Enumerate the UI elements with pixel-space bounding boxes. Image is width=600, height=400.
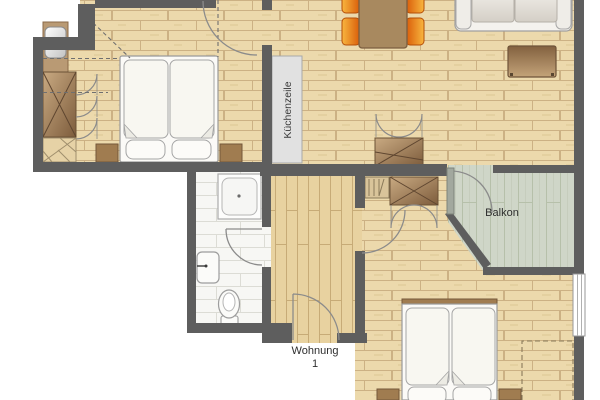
bed2-nightstand-left bbox=[377, 389, 399, 400]
hallway-floor bbox=[262, 166, 362, 343]
dining-chair bbox=[406, 0, 424, 13]
shower-drain bbox=[237, 194, 240, 197]
bed2-duvet-right bbox=[452, 308, 495, 385]
dining-chair bbox=[342, 18, 360, 45]
wall-bath-right-upper bbox=[262, 172, 271, 227]
bed1-pillow-left bbox=[126, 140, 165, 159]
bed2-pillow-left bbox=[408, 387, 446, 400]
wall-hall-stub-b bbox=[355, 251, 365, 340]
kitchen-unit-label: Küchenzeile bbox=[282, 81, 294, 138]
washbasin bbox=[197, 252, 219, 283]
wall-central bbox=[260, 164, 447, 176]
wall-balcony-top bbox=[493, 165, 580, 173]
wall-hall-stub-a bbox=[355, 176, 365, 208]
wall-right bbox=[574, 0, 584, 400]
washbasin-tap-dot bbox=[205, 265, 208, 268]
wall-bath-bottom bbox=[187, 323, 271, 333]
bed2-pillow-right bbox=[453, 387, 491, 400]
wall-balcony-bottom bbox=[483, 267, 584, 275]
apartment-label-line2: 1 bbox=[312, 358, 318, 370]
sofa-cushion bbox=[515, 0, 557, 22]
dining-set bbox=[342, 0, 424, 48]
wall-step bbox=[78, 4, 95, 50]
apartment-label-line1: Wohnung bbox=[292, 345, 339, 357]
nightstand-right bbox=[220, 144, 242, 162]
wall-bedroom1-south bbox=[33, 162, 271, 172]
bed1-duvet-right bbox=[170, 60, 214, 138]
floorplan: Küchenzeile bbox=[0, 0, 600, 400]
table-foot bbox=[551, 73, 554, 76]
window-right bbox=[573, 274, 585, 336]
dining-chair bbox=[342, 0, 360, 13]
dining-chair bbox=[406, 18, 424, 45]
wall-top-strip bbox=[95, 0, 216, 8]
dining-table bbox=[359, 0, 407, 48]
floor-hatch-area bbox=[43, 138, 76, 162]
double-bed-1 bbox=[120, 56, 218, 162]
bed1-pillow-right bbox=[172, 140, 211, 159]
wall-bath-left bbox=[187, 162, 196, 333]
toilet-bowl-inner bbox=[223, 293, 235, 311]
sofa-armrest-left bbox=[456, 0, 471, 29]
balcony-label: Balkon bbox=[485, 207, 519, 219]
bed2-nightstand-right bbox=[499, 389, 521, 400]
wall-left bbox=[33, 37, 43, 172]
table-foot bbox=[510, 73, 513, 76]
floorplan-drawing: Küchenzeile bbox=[0, 0, 600, 400]
wall-stub-top bbox=[262, 0, 272, 10]
bed1-duvet-left bbox=[124, 60, 168, 138]
kitchen-unit: Küchenzeile bbox=[272, 56, 302, 163]
bed2-duvet-left bbox=[406, 308, 449, 385]
coffee-table bbox=[508, 46, 556, 77]
wall-kitchen bbox=[262, 45, 272, 172]
sofa-cushion bbox=[472, 0, 514, 22]
wall-entry-block bbox=[262, 323, 292, 343]
nightstand-left bbox=[96, 144, 118, 162]
sofa-armrest-right bbox=[556, 0, 571, 29]
balcony-door-leaf bbox=[447, 168, 454, 214]
